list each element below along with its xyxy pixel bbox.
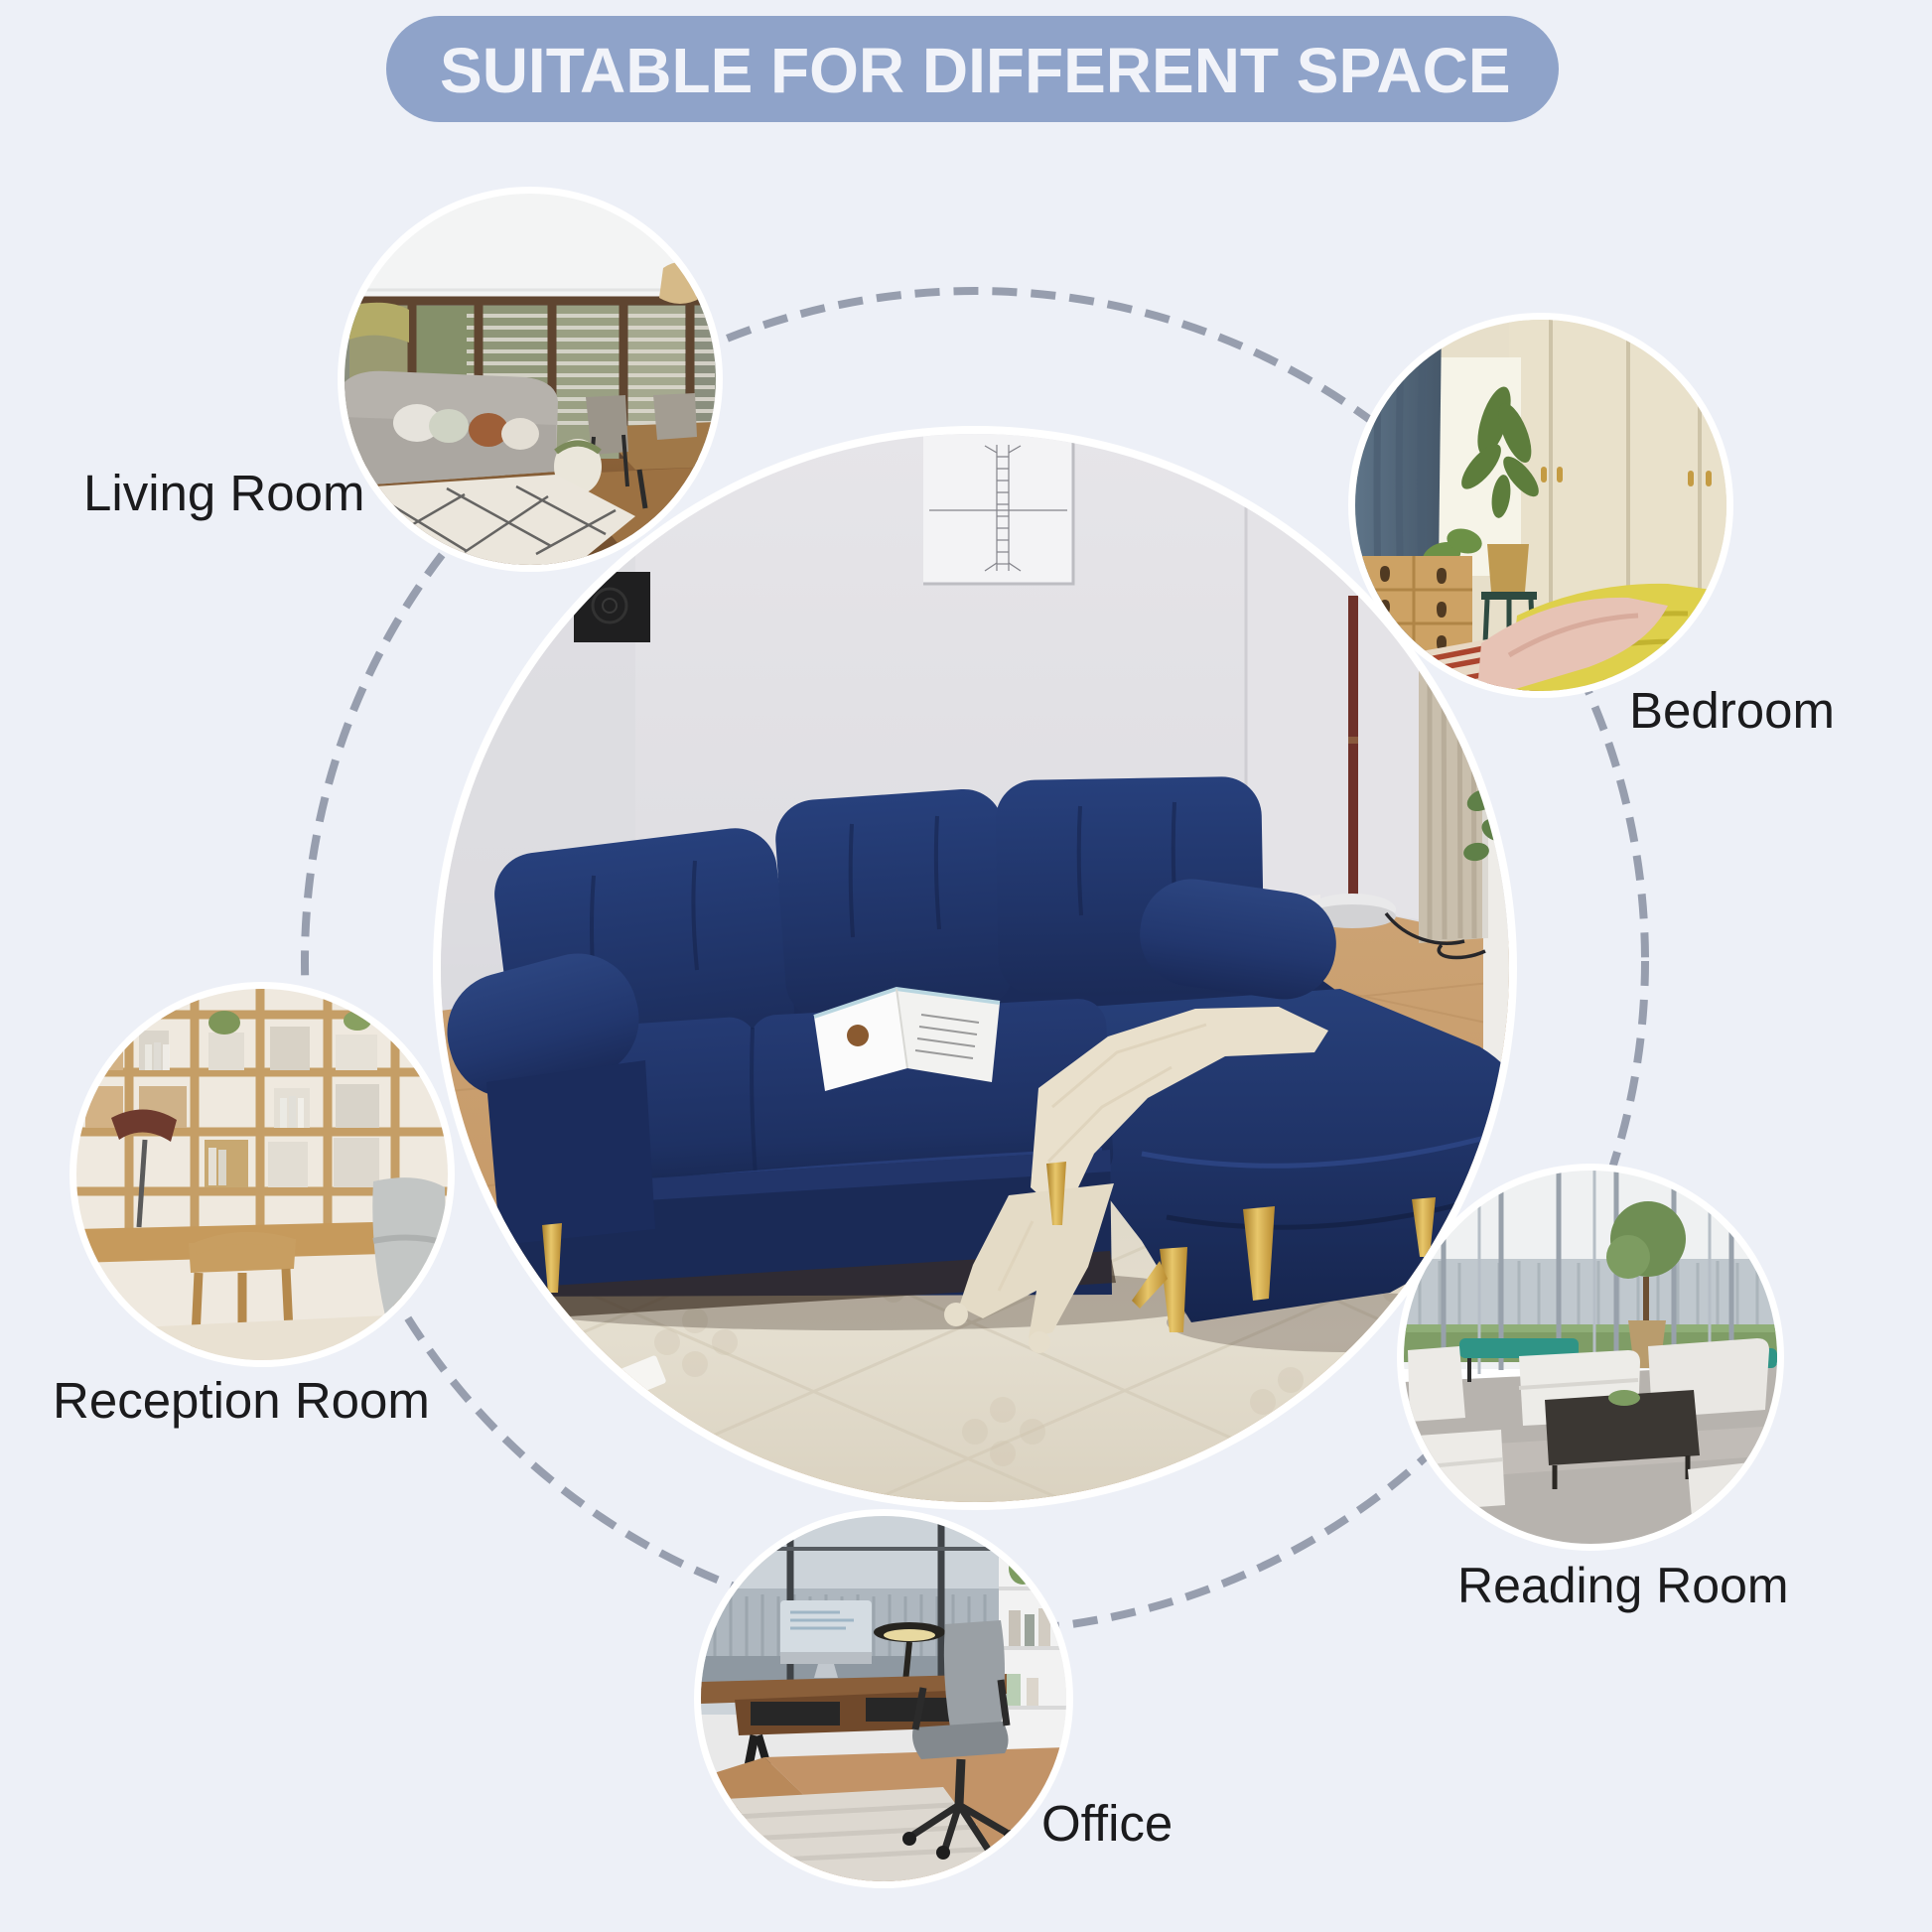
svg-text:SUITABLE FOR DIFFERENT SPACE: SUITABLE FOR DIFFERENT SPACE	[440, 35, 1511, 106]
svg-text:Living Room: Living Room	[83, 465, 364, 521]
svg-text:Office: Office	[1041, 1795, 1173, 1852]
svg-text:Reading Room: Reading Room	[1457, 1558, 1789, 1613]
svg-text:Reception Room: Reception Room	[53, 1372, 430, 1429]
svg-text:Bedroom: Bedroom	[1629, 682, 1835, 739]
